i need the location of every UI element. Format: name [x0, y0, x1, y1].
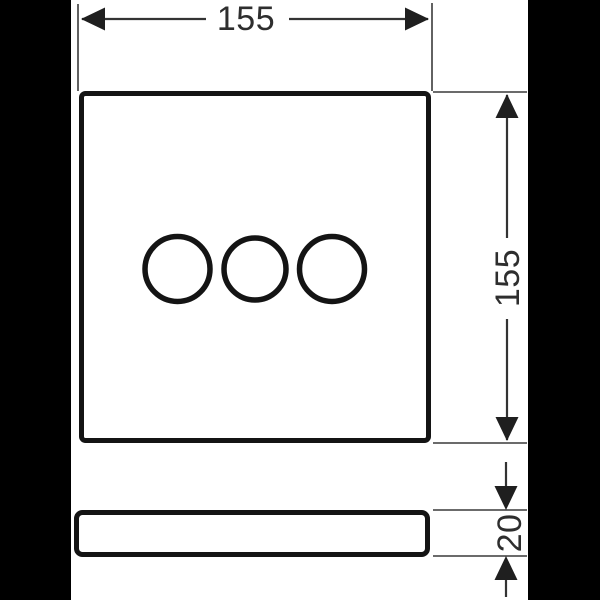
arrow-down-icon	[495, 486, 518, 510]
arrow-up-icon	[495, 556, 518, 580]
handle-circle-2	[224, 238, 286, 300]
depth-dimension-label: 20	[491, 514, 529, 553]
technical-drawing: 155 155	[0, 0, 600, 600]
side-view	[77, 513, 428, 555]
front-view	[82, 94, 429, 441]
arrow-down-icon	[496, 417, 519, 441]
handle-circle-1	[145, 237, 210, 302]
handle-circle-3	[300, 237, 365, 302]
width-dimension-label: 155	[217, 0, 275, 38]
technical-drawing-canvas: 155 155	[0, 0, 600, 600]
height-dimension: 155	[433, 92, 527, 443]
arrow-left-icon	[81, 8, 105, 31]
height-dimension-label: 155	[489, 249, 527, 307]
arrow-right-icon	[405, 8, 429, 31]
arrow-up-icon	[496, 94, 519, 118]
left-black-bar	[0, 0, 71, 600]
right-black-bar	[528, 0, 600, 600]
front-view-plate	[82, 94, 429, 441]
width-dimension: 155	[78, 0, 432, 91]
depth-dimension: 20	[433, 462, 529, 597]
side-view-plate	[77, 513, 428, 555]
